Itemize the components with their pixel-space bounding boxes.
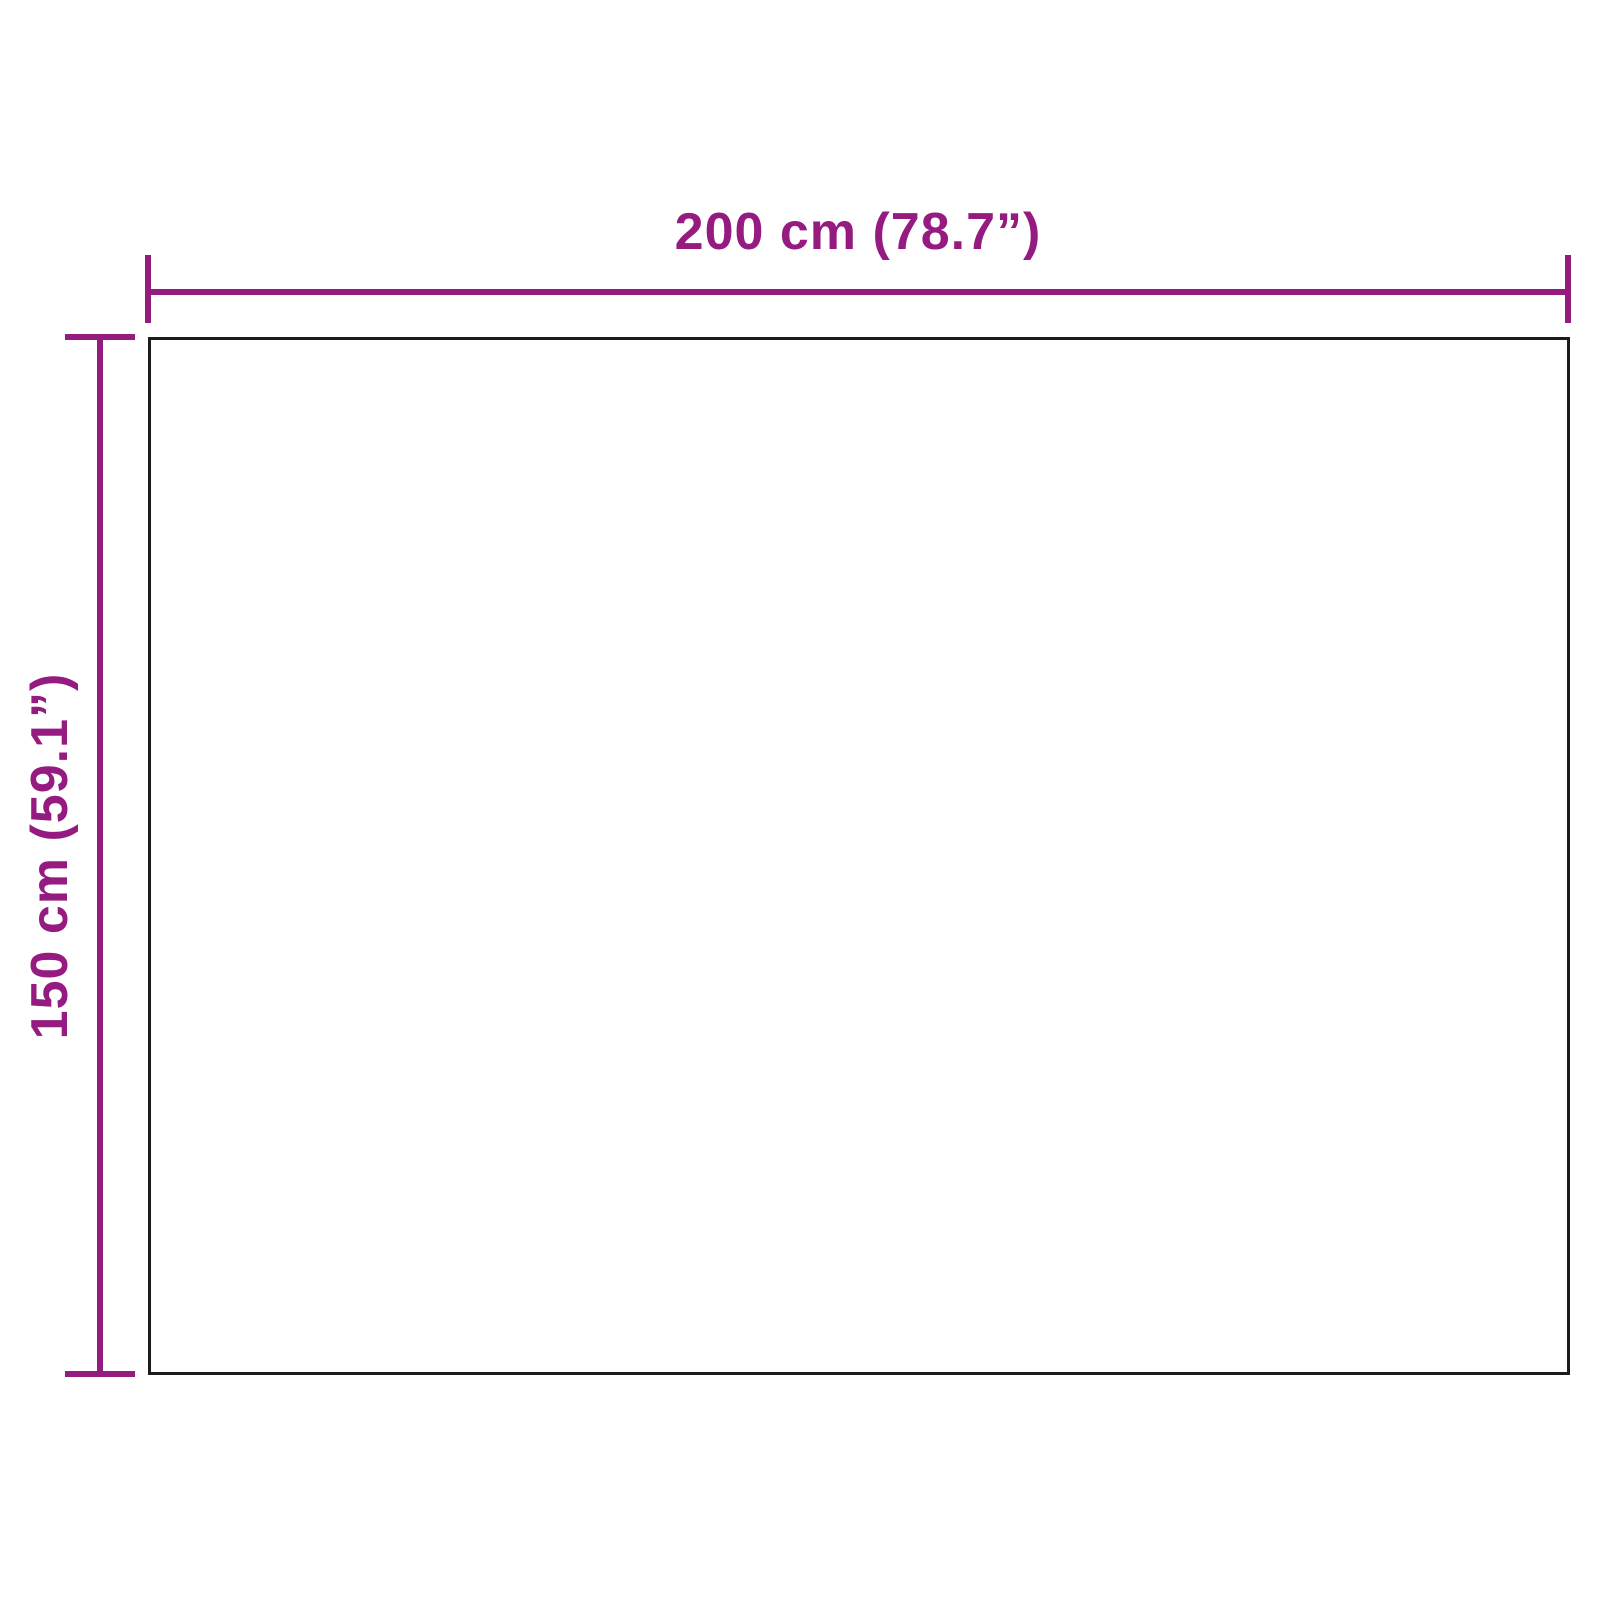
width-dimension-label: 200 cm (78.7”) bbox=[675, 202, 1042, 262]
dimension-diagram: 200 cm (78.7”) 150 cm (59.1”) bbox=[0, 0, 1600, 1600]
height-dimension-label: 150 cm (59.1”) bbox=[20, 673, 80, 1040]
width-dimension-line bbox=[148, 289, 1568, 295]
height-dimension-line bbox=[97, 337, 103, 1374]
width-dimension-tick-right bbox=[1565, 255, 1571, 323]
height-dimension-tick-top bbox=[65, 334, 135, 340]
height-dimension-tick-bottom bbox=[65, 1371, 135, 1377]
width-dimension-tick-left bbox=[145, 255, 151, 323]
product-outline-rectangle bbox=[148, 337, 1570, 1375]
